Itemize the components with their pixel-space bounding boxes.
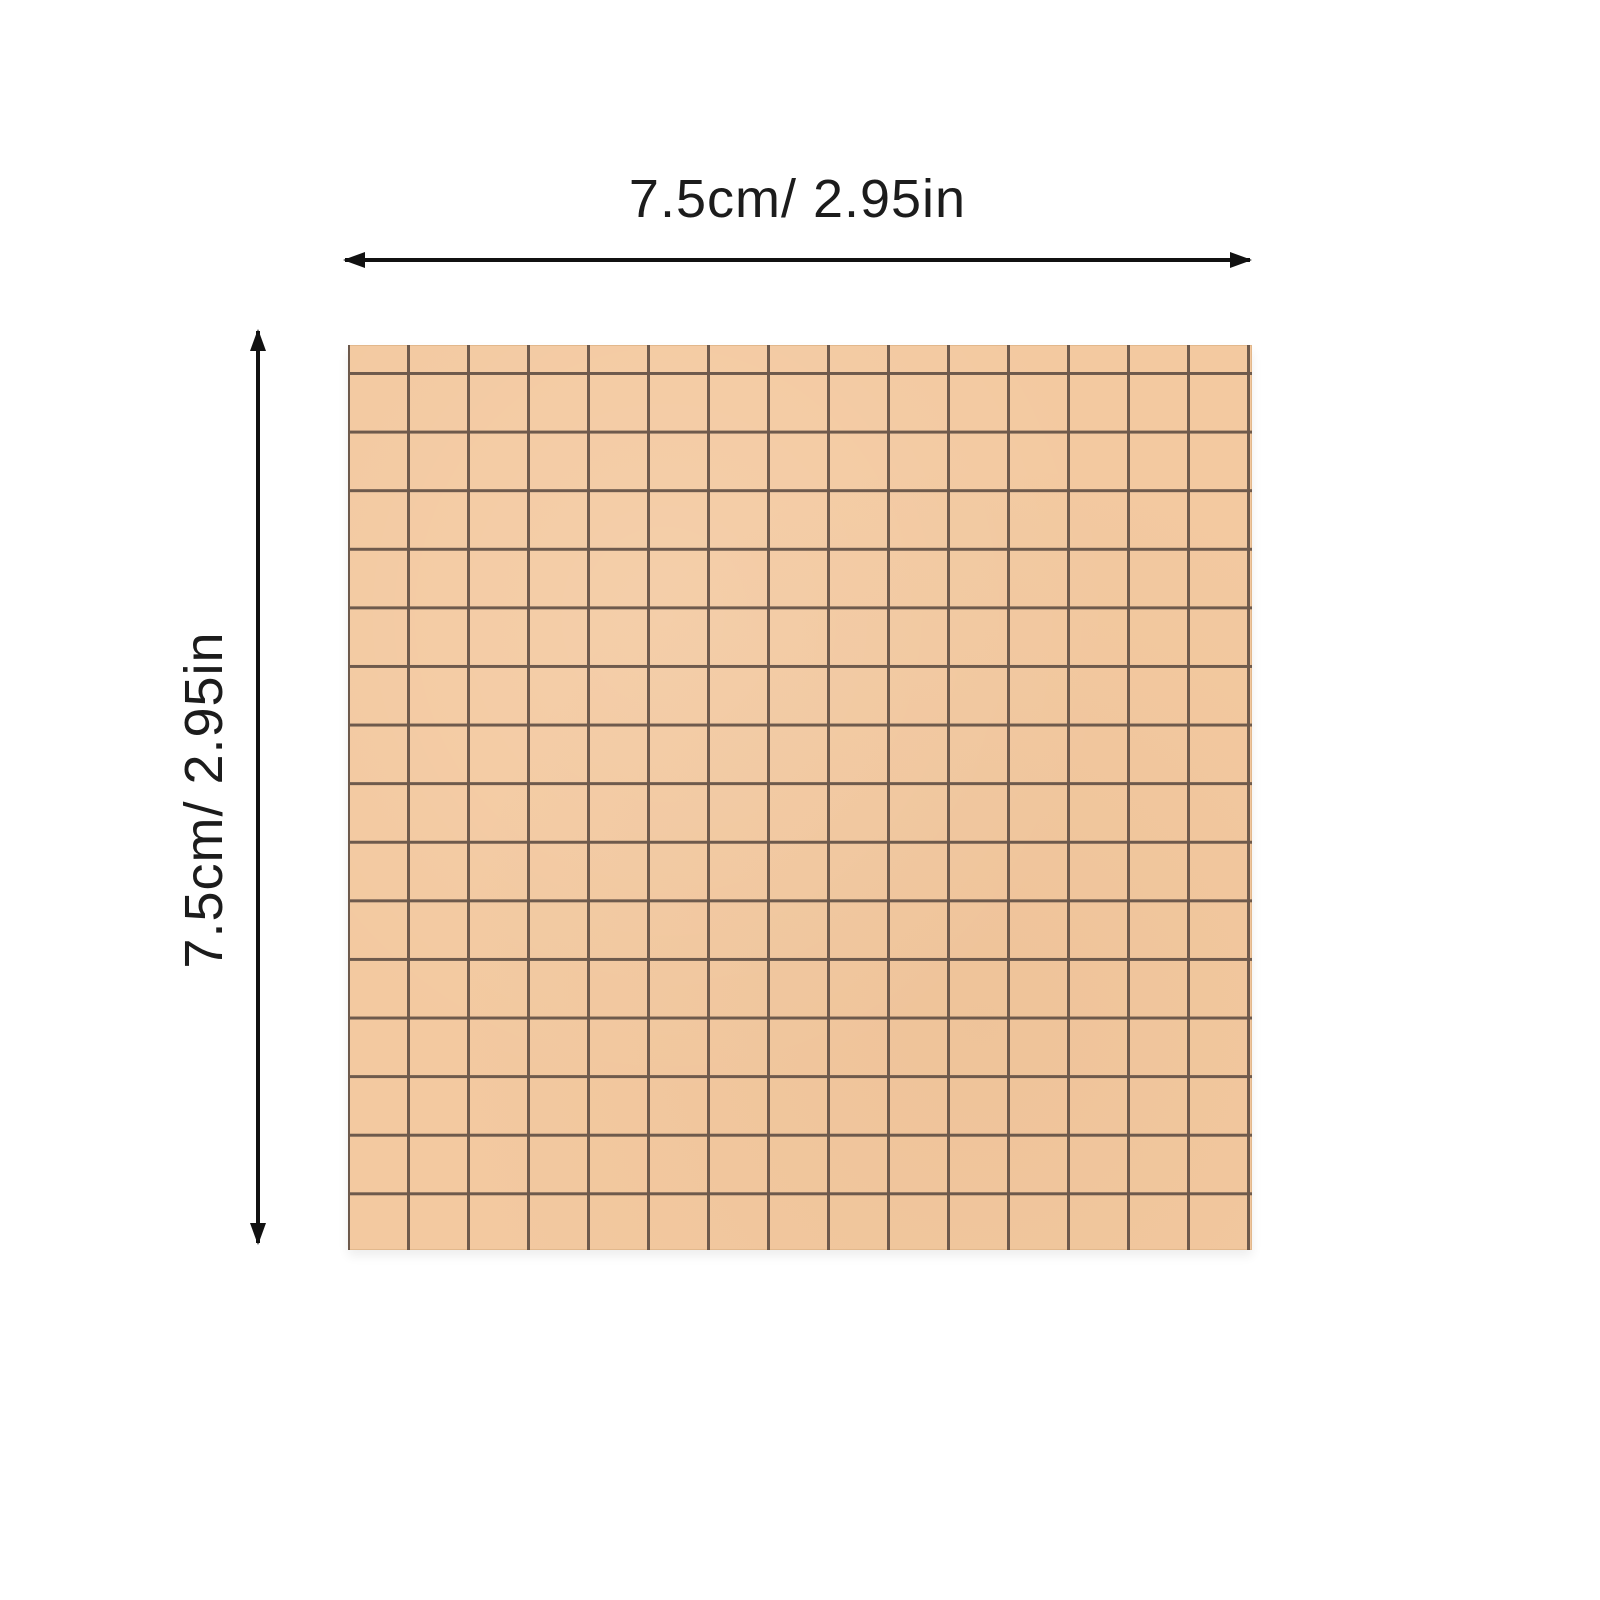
grid-note-paper <box>348 345 1252 1250</box>
width-dimension-label: 7.5cm/ 2.95in <box>345 168 1250 230</box>
arrowhead-left-icon <box>343 252 365 268</box>
arrowhead-down-icon <box>250 1223 266 1245</box>
grid-lines <box>348 345 1252 1250</box>
arrowhead-right-icon <box>1230 252 1252 268</box>
height-dimension-label: 7.5cm/ 2.95in <box>173 631 235 968</box>
width-dimension-arrow <box>345 258 1250 262</box>
product-dimension-diagram: 7.5cm/ 2.95in 7.5cm/ 2.95in <box>0 0 1600 1600</box>
arrowhead-up-icon <box>250 329 266 351</box>
height-dimension-arrow <box>256 331 260 1243</box>
